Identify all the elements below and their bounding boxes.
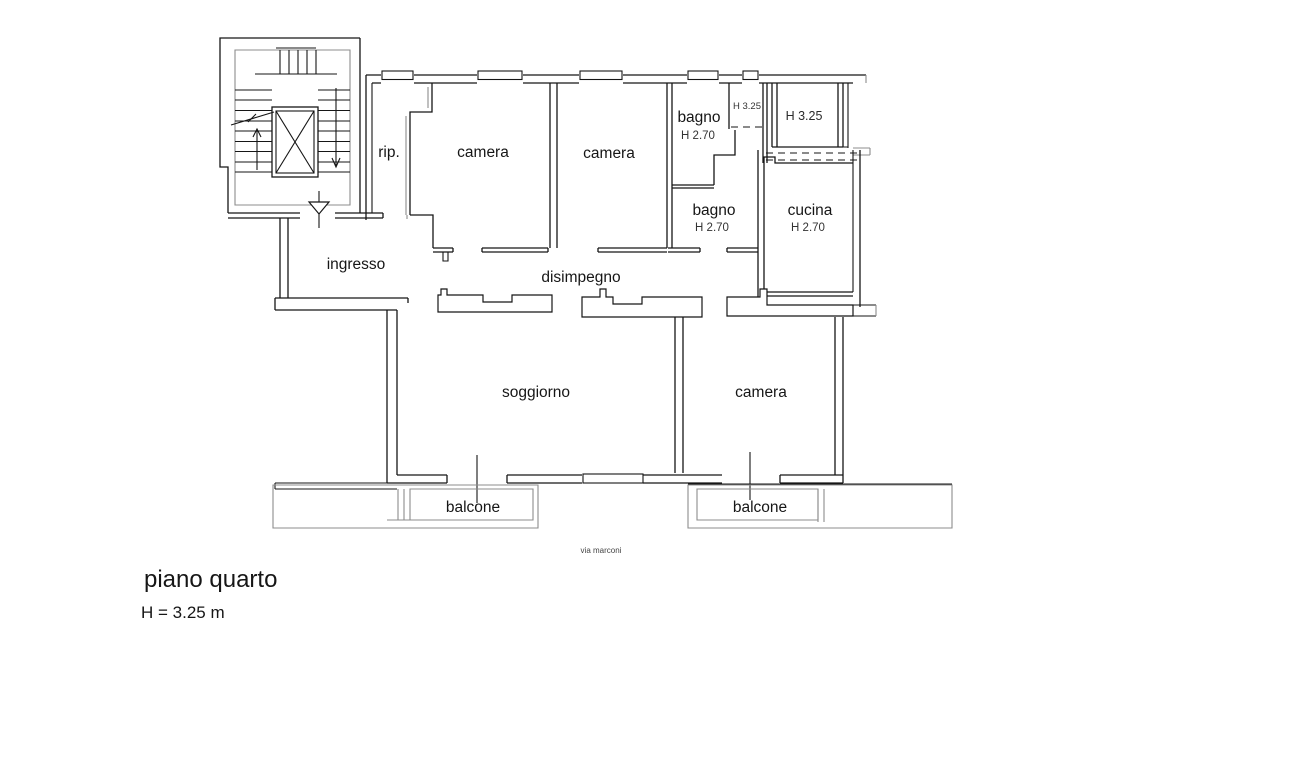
stair-break-line [231, 112, 274, 125]
floor-plan-drawing: rip. camera camera bagno H 2.70 H 3.25 H… [0, 0, 1305, 762]
floor-title: piano quarto [144, 566, 277, 593]
entrance-door-icon [309, 191, 329, 228]
stair-up-arrow-icon [253, 129, 261, 170]
window-icon [582, 473, 644, 485]
room-label-hallway: disimpegno [541, 269, 620, 286]
room-label-storage: rip. [378, 144, 400, 161]
room-label-bedroom-3: camera [735, 384, 787, 401]
room-label-living-room: soggiorno [502, 384, 570, 401]
height-label-shaft: H 3.25 [733, 101, 761, 112]
balconies [273, 484, 952, 528]
room-labels: rip. camera camera bagno H 2.70 H 3.25 H… [327, 101, 833, 555]
window-icon [477, 70, 523, 85]
window-icon [687, 70, 719, 85]
height-label-kitchen: H 2.70 [791, 222, 825, 234]
bottom-facade [275, 452, 843, 503]
height-label-veranda: H 3.25 [786, 109, 823, 123]
room-label-balcony-2: balcone [733, 499, 787, 516]
facade-windows [381, 70, 759, 85]
floor-plan-page: rip. camera camera bagno H 2.70 H 3.25 H… [0, 0, 1305, 762]
stairwell [220, 38, 383, 228]
footer-labels: piano quarto H = 3.25 m [141, 566, 277, 622]
window-icon [381, 70, 414, 85]
height-label-bathroom-1: H 2.70 [681, 130, 715, 142]
street-label: via marconi [581, 546, 622, 555]
room-label-balcony-1: balcone [446, 499, 500, 516]
room-label-kitchen: cucina [788, 202, 833, 219]
room-label-entry: ingresso [327, 256, 386, 273]
ceiling-height-label: H = 3.25 m [141, 603, 225, 622]
window-icon [742, 70, 759, 85]
window-icon [579, 70, 623, 85]
room-label-bedroom-1: camera [457, 144, 509, 161]
room-label-bathroom-2: bagno [692, 202, 735, 219]
elevator-icon [272, 107, 318, 177]
room-label-bedroom-2: camera [583, 145, 635, 162]
height-label-bathroom-2: H 2.70 [695, 222, 729, 234]
room-label-bathroom-1: bagno [677, 109, 720, 126]
